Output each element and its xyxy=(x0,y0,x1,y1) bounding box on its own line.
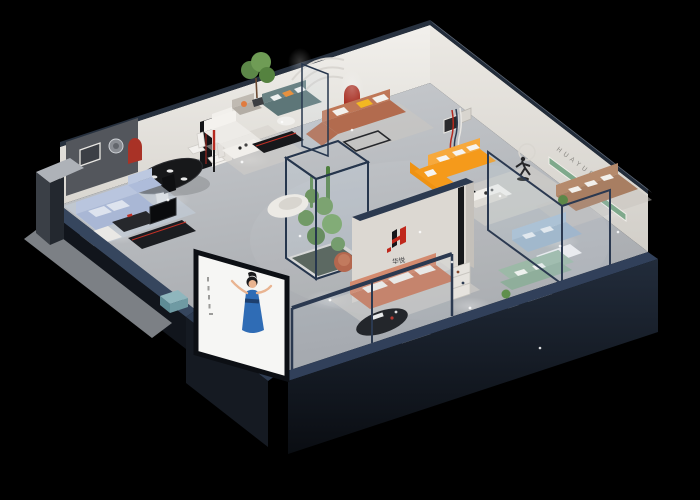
orange-pillow xyxy=(241,101,247,107)
showroom-svg: HUAYUE xyxy=(0,0,700,500)
glass-partition-small xyxy=(302,64,328,156)
round-side-table xyxy=(277,117,295,126)
plant xyxy=(502,290,511,299)
red-arch-niche xyxy=(128,138,142,164)
terracotta-armchair xyxy=(334,252,354,272)
showroom-render: HUAYUE xyxy=(0,0,700,500)
shelf-unit xyxy=(452,262,470,300)
